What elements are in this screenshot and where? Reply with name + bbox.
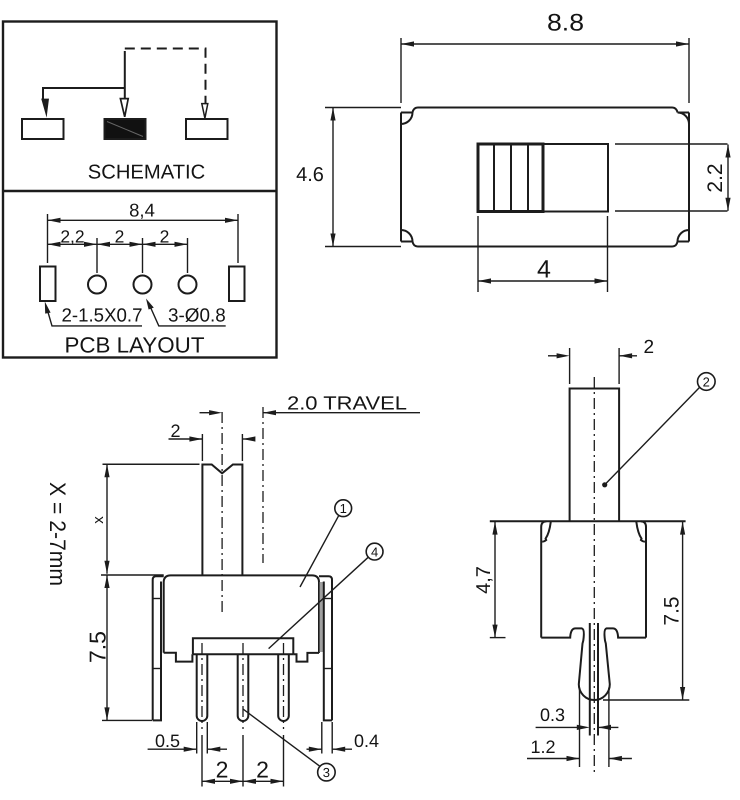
svg-text:2: 2 [160, 227, 170, 247]
svg-text:0.3: 0.3 [540, 705, 565, 725]
svg-text:4: 4 [537, 256, 551, 284]
svg-text:2.0 TRAVEL: 2.0 TRAVEL [287, 394, 407, 415]
svg-text:3: 3 [323, 765, 330, 780]
svg-text:2,2: 2,2 [60, 227, 84, 247]
svg-text:2.2: 2.2 [704, 163, 727, 192]
svg-text:4: 4 [371, 544, 378, 559]
svg-text:2: 2 [216, 757, 229, 783]
svg-text:0.4: 0.4 [354, 731, 379, 751]
svg-text:PCB LAYOUT: PCB LAYOUT [65, 333, 205, 358]
svg-text:2-1.5X0.7: 2-1.5X0.7 [62, 306, 143, 327]
svg-text:x: x [90, 516, 107, 524]
svg-text:2: 2 [703, 374, 710, 389]
svg-text:2: 2 [170, 421, 180, 441]
svg-text:3-Ø0.8: 3-Ø0.8 [168, 306, 226, 327]
svg-text:4.6: 4.6 [296, 164, 324, 186]
svg-text:2: 2 [644, 337, 655, 358]
svg-text:0.5: 0.5 [155, 731, 180, 751]
svg-text:2: 2 [115, 227, 125, 247]
svg-text:2: 2 [256, 757, 269, 783]
svg-text:1.2: 1.2 [531, 737, 556, 757]
svg-text:SCHEMATIC: SCHEMATIC [88, 162, 206, 184]
svg-text:4,7: 4,7 [473, 566, 495, 594]
svg-text:8.8: 8.8 [547, 10, 584, 37]
svg-text:7.5: 7.5 [661, 596, 684, 625]
svg-text:8,4: 8,4 [129, 200, 155, 221]
svg-text:X = 2-7mm: X = 2-7mm [45, 482, 70, 586]
svg-text:1: 1 [340, 501, 347, 516]
